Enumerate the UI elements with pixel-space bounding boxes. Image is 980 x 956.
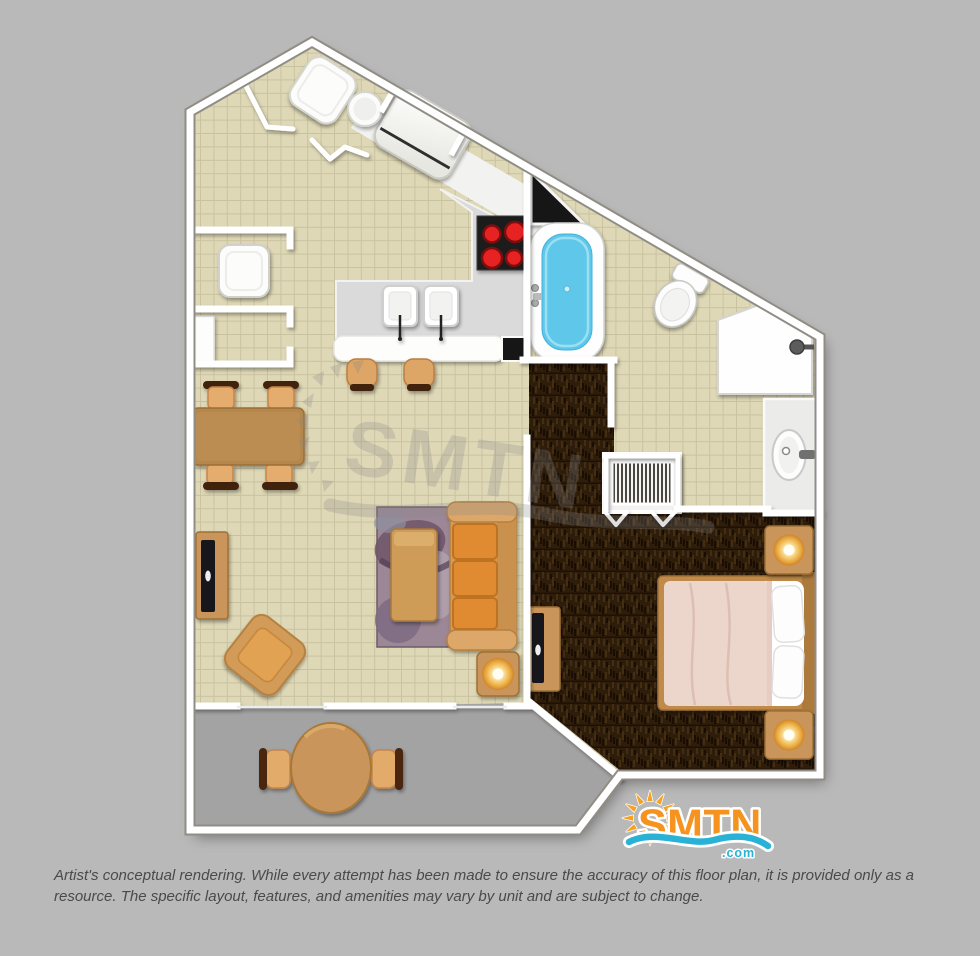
floor-plan-canvas: SMTN SMTN .com: [0, 0, 980, 956]
sofa-back: [497, 506, 516, 646]
patio-table: [291, 723, 371, 813]
tub-drain: [564, 286, 570, 292]
patio-chair: [266, 750, 290, 788]
stool-back: [350, 384, 374, 391]
nightstand-top: [765, 526, 813, 574]
tub-spout: [533, 293, 542, 300]
burner: [505, 222, 525, 242]
dining-chair-back: [203, 482, 239, 490]
island-front-panel: [334, 336, 504, 361]
patio-chair-back: [395, 748, 403, 790]
left-closet-appliance: [219, 245, 269, 297]
stool-back: [407, 384, 431, 391]
dining-chair: [268, 387, 294, 409]
sofa-cushion: [453, 561, 497, 596]
patio-chair: [372, 750, 396, 788]
patio-chair-back: [259, 748, 267, 790]
dining-chair: [208, 387, 234, 409]
bed: [658, 572, 818, 714]
bathtub: [530, 223, 604, 361]
sofa-cushion: [453, 524, 497, 559]
dining-chair: [266, 464, 292, 484]
sink-faucet: [799, 450, 816, 459]
nightstand-bottom: [765, 711, 813, 759]
dining-chair-back: [262, 482, 298, 490]
sofa-arm: [447, 630, 517, 650]
stool: [404, 359, 434, 387]
disclaimer-text: Artist's conceptual rendering. While eve…: [54, 866, 956, 907]
shower: [718, 303, 814, 394]
smtn-logo: SMTN .com: [622, 790, 768, 860]
tv-console-living: [196, 532, 228, 619]
pillow: [772, 645, 805, 698]
sofa-cushion: [453, 598, 497, 629]
floor-plan-page: SMTN SMTN .com: [0, 0, 980, 956]
tv-console-bedroom: [528, 607, 560, 691]
burner: [506, 250, 522, 266]
bedroom-closet: [604, 454, 680, 512]
bed-sheet: [664, 581, 770, 706]
sink-drain: [783, 448, 790, 455]
kitchen-round-sink: [348, 92, 382, 126]
shower-head: [790, 340, 804, 354]
tub-knob: [532, 300, 539, 307]
burner: [484, 226, 501, 243]
pillow: [771, 585, 805, 643]
logo-tld: .com: [722, 846, 755, 860]
coffee-table: [391, 529, 437, 621]
dining-chair: [207, 464, 233, 484]
lamp-table-living: [477, 652, 519, 696]
stove-cooktop: [477, 216, 529, 270]
tub-knob: [532, 285, 539, 292]
sofa: [447, 502, 517, 650]
burner: [482, 248, 502, 268]
vanity-counter: [764, 399, 816, 513]
